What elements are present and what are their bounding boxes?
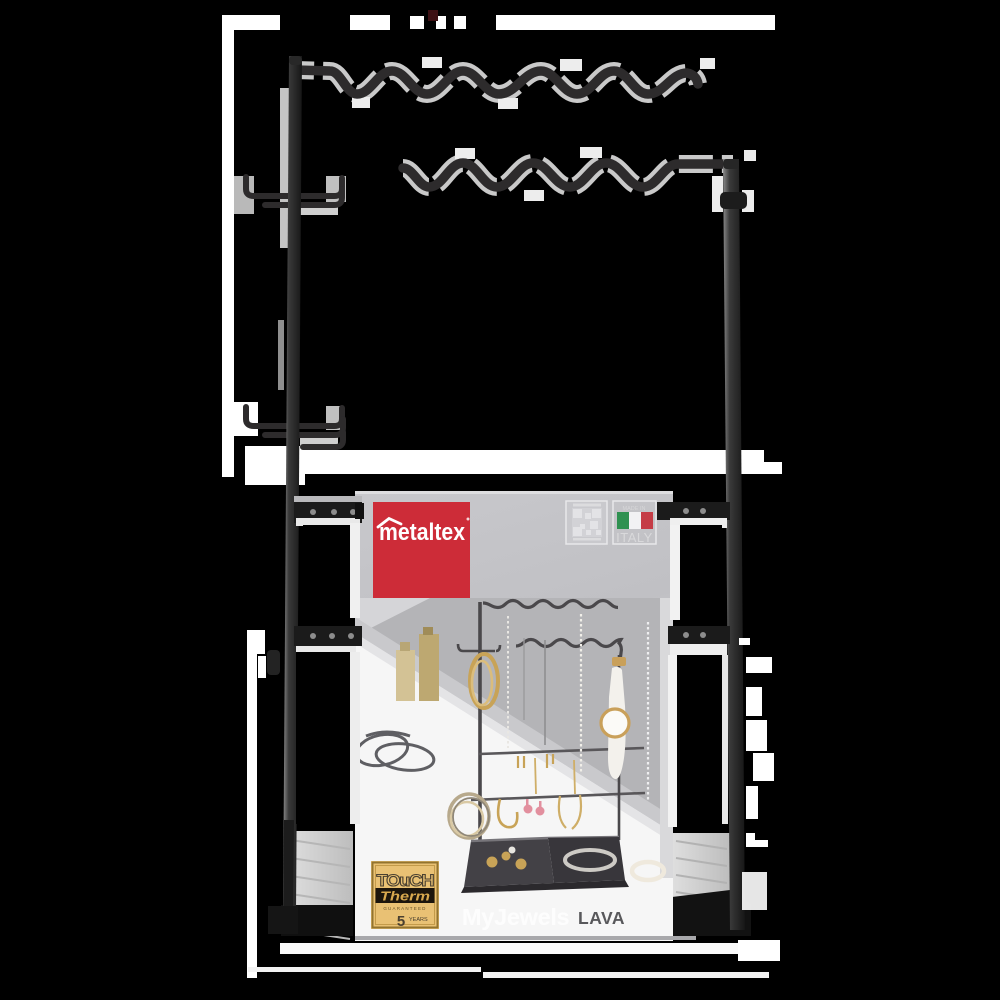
svg-text:5: 5 xyxy=(397,913,405,930)
svg-text:MADE IN: MADE IN xyxy=(623,506,646,512)
svg-text:Therm: Therm xyxy=(380,889,431,904)
svg-text:metaltex: metaltex xyxy=(379,519,466,546)
svg-text:TOuCH: TOuCH xyxy=(377,871,435,890)
svg-text:GUARANTEED: GUARANTEED xyxy=(383,906,426,911)
svg-text:ITALY: ITALY xyxy=(616,530,653,545)
svg-text:LAVA: LAVA xyxy=(578,908,625,928)
svg-text:MyJewels: MyJewels xyxy=(462,904,570,930)
svg-text:YEARS: YEARS xyxy=(409,917,428,923)
